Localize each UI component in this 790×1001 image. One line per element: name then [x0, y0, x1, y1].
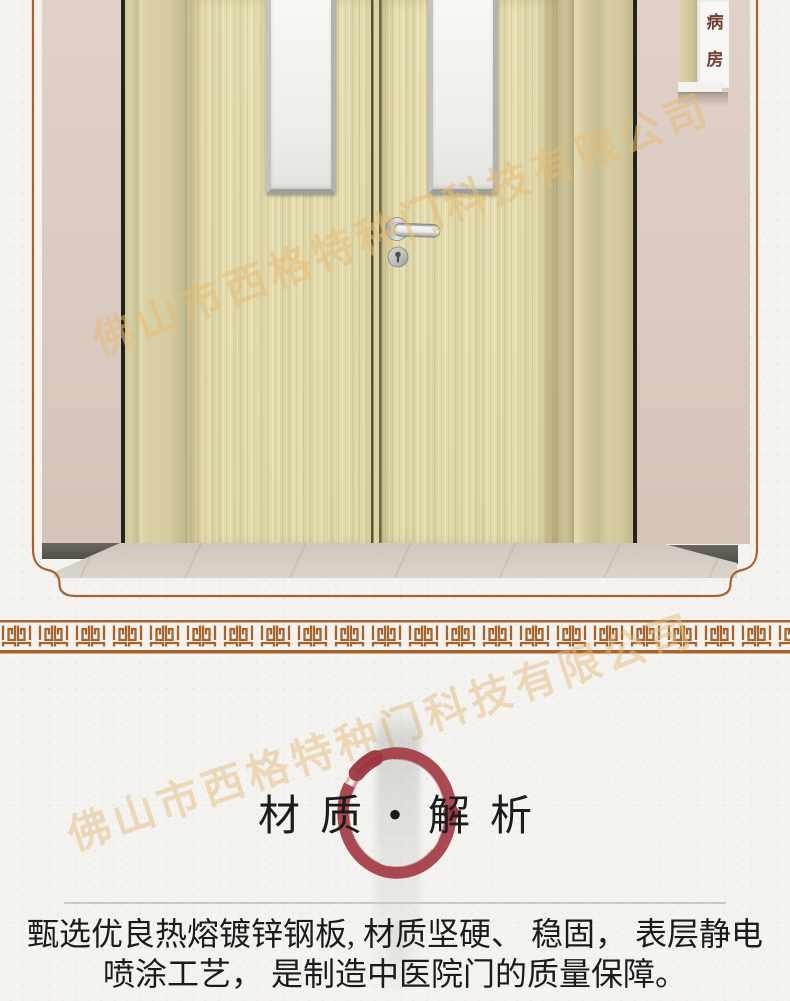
- material-section: 佛山市西格特种门科技有限公司 材质 • 解析 甄选优良热熔镀锌钢板, 材质坚硬、…: [0, 653, 790, 1001]
- door-frame-left: [125, 0, 188, 545]
- meeting-stile-gap: [371, 0, 383, 545]
- material-description-line1: 甄选优良热熔镀锌钢板, 材质坚硬、 稳固， 表层静电: [0, 914, 790, 954]
- hinge-gap: [556, 0, 574, 545]
- product-detail-page: 病房: [0, 0, 790, 1001]
- section-title-right: 解析: [428, 792, 552, 842]
- section-title: 材质 • 解析: [0, 792, 790, 842]
- section-title-left: 材质: [258, 792, 382, 842]
- section-title-dot-icon: •: [388, 795, 402, 835]
- room-sign: 病房: [697, 0, 729, 88]
- door-photo: 病房: [0, 0, 790, 606]
- room-sign-label: 病房: [701, 0, 726, 88]
- vision-panel-right: [428, 0, 498, 194]
- door-frame-right: [574, 0, 633, 545]
- vision-panel-left: [266, 0, 336, 194]
- section-divider: [64, 902, 726, 904]
- floor-threshold: [49, 543, 738, 578]
- frame-gap-line-right: [633, 0, 637, 545]
- sign-mount-strip: [680, 0, 697, 84]
- material-description-line2: 喷涂工艺， 是制造中医院门的质量保障。: [0, 954, 790, 994]
